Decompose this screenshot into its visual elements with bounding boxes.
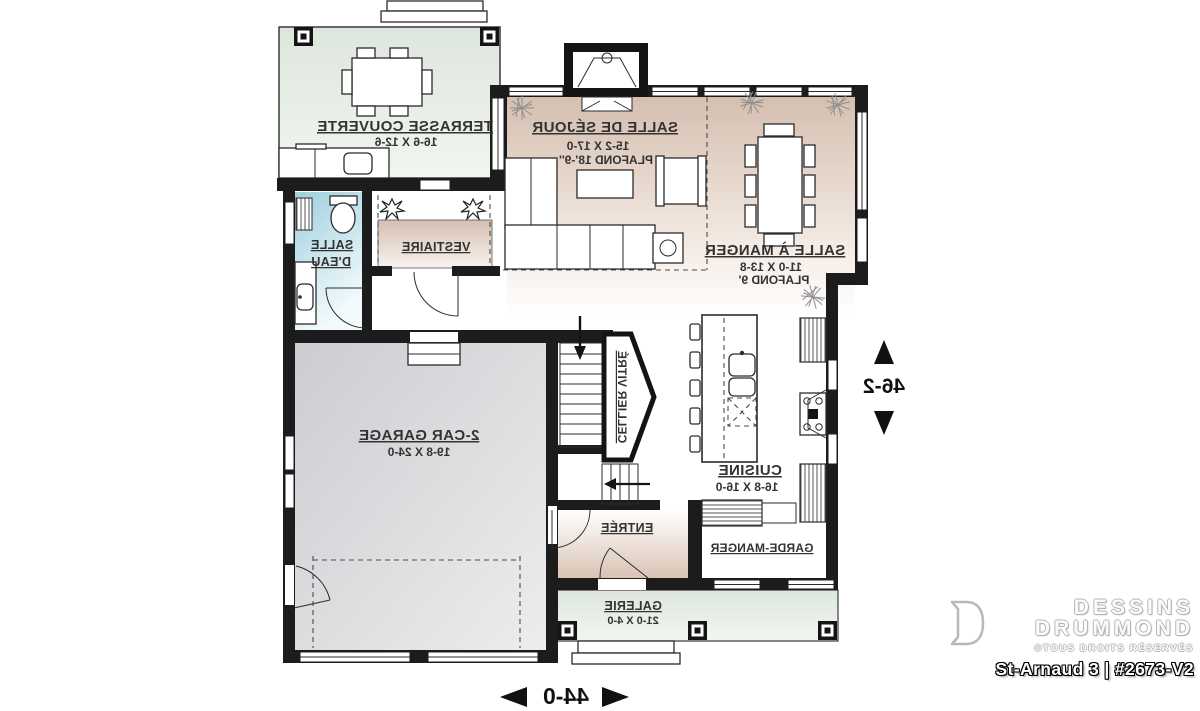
brand-rights: ©TOUS DROITS RÉSERVÉS xyxy=(1034,643,1194,654)
brand-d-mark-icon xyxy=(942,599,986,647)
room-garage xyxy=(295,343,546,650)
brand-name-line2: DRUMMOND xyxy=(1034,618,1194,639)
label-sejour-dims: 15-2 X 17-0 xyxy=(566,139,629,153)
label-sejour: SALLE DE SÉJOUR xyxy=(532,119,678,136)
pantry-shelf-icon xyxy=(702,500,796,526)
island-icon xyxy=(690,315,757,462)
porch-step xyxy=(572,653,680,664)
post-icon xyxy=(558,621,577,640)
width-dimension-label: 44-0 xyxy=(543,683,589,709)
post-icon xyxy=(294,27,313,46)
brand-logo: DESSINS DRUMMOND ©TOUS DROITS RÉSERVÉS S… xyxy=(942,597,1194,680)
front-door-opening xyxy=(598,579,646,590)
counter-icon xyxy=(800,464,826,522)
fridge-icon xyxy=(800,318,826,362)
terrace-step xyxy=(381,11,487,22)
plan-number: St-Arnaud 3 | #2673-V2 xyxy=(942,659,1194,680)
label-cellier: CELLIER VITRÉ xyxy=(615,351,630,444)
side-table-icon xyxy=(653,233,683,263)
brand-name-line1: DESSINS xyxy=(1034,597,1194,618)
arrow-up-icon xyxy=(874,340,894,364)
dimension-width: 44-0 xyxy=(500,683,629,709)
patio-table-icon xyxy=(342,48,432,116)
label-galerie: GALERIE xyxy=(604,599,662,613)
label-entree: ENTRÉE xyxy=(601,520,654,535)
post-icon xyxy=(480,27,499,46)
label-manger: SALLE À MANGER xyxy=(705,242,846,259)
mudroom-step-icon xyxy=(408,343,460,365)
label-galerie-dims: 21-0 X 4-0 xyxy=(607,615,658,627)
bbq-counter-icon xyxy=(279,144,389,178)
brand-name: DESSINS DRUMMOND ©TOUS DROITS RÉSERVÉS xyxy=(1034,597,1194,654)
depth-dimension-label: 46-2 xyxy=(863,375,905,398)
dimension-depth: 46-2 xyxy=(863,340,905,435)
coat-hook-icon xyxy=(380,199,404,219)
post-icon xyxy=(688,621,707,640)
label-salle-eau-2: D'EAU xyxy=(311,255,351,269)
garage-side-door-opening xyxy=(285,565,294,605)
label-cuisine: CUISINE xyxy=(718,462,782,479)
label-garage-dims: 19-8 X 24-0 xyxy=(387,445,450,459)
label-terrasse-dims: 16-6 X 12-6 xyxy=(374,135,437,149)
vanity-sink-icon xyxy=(295,262,316,324)
arrow-down-icon xyxy=(874,411,894,435)
linen-shelf-icon xyxy=(296,198,312,230)
stair-down-arrow xyxy=(574,346,586,360)
coffee-table-icon xyxy=(577,170,633,198)
label-sejour-ceiling: PLAFOND 18'-9'' xyxy=(559,153,653,167)
toilet-icon xyxy=(330,196,357,233)
hall-door-swing xyxy=(414,272,458,316)
stove-icon xyxy=(800,390,826,438)
post-icon xyxy=(818,621,837,640)
label-vestiaire: VESTIAIRE xyxy=(402,240,471,254)
basement-stairs-icon xyxy=(602,464,650,504)
porch-step xyxy=(578,641,674,653)
label-manger-dims: 11-0 X 13-8 xyxy=(740,260,802,274)
label-manger-ceiling: PLAFOND 9' xyxy=(738,273,809,287)
armchair-icon xyxy=(656,156,706,206)
garage-mudroom-door-opening xyxy=(410,332,458,342)
label-terrasse: TERRASSE COUVERTE xyxy=(317,118,493,135)
terrace-step xyxy=(387,1,483,11)
label-salle-eau-1: SALLE xyxy=(311,238,353,252)
sink-icon xyxy=(729,354,755,376)
floor-plan-canvas: 46-2 44-0 TERRASSE COUVERTE 16-6 X 12-6 … xyxy=(0,0,1200,711)
arrow-left-icon xyxy=(500,687,527,707)
stool-icon xyxy=(690,324,700,452)
coat-hook-icon xyxy=(461,199,485,219)
label-cuisine-dims: 16-8 X 16-0 xyxy=(715,480,778,494)
label-garde-manger: GARDE-MANGER xyxy=(710,541,813,555)
label-garage: 2-CAR GARAGE xyxy=(359,427,480,444)
arrow-right-icon xyxy=(602,687,629,707)
